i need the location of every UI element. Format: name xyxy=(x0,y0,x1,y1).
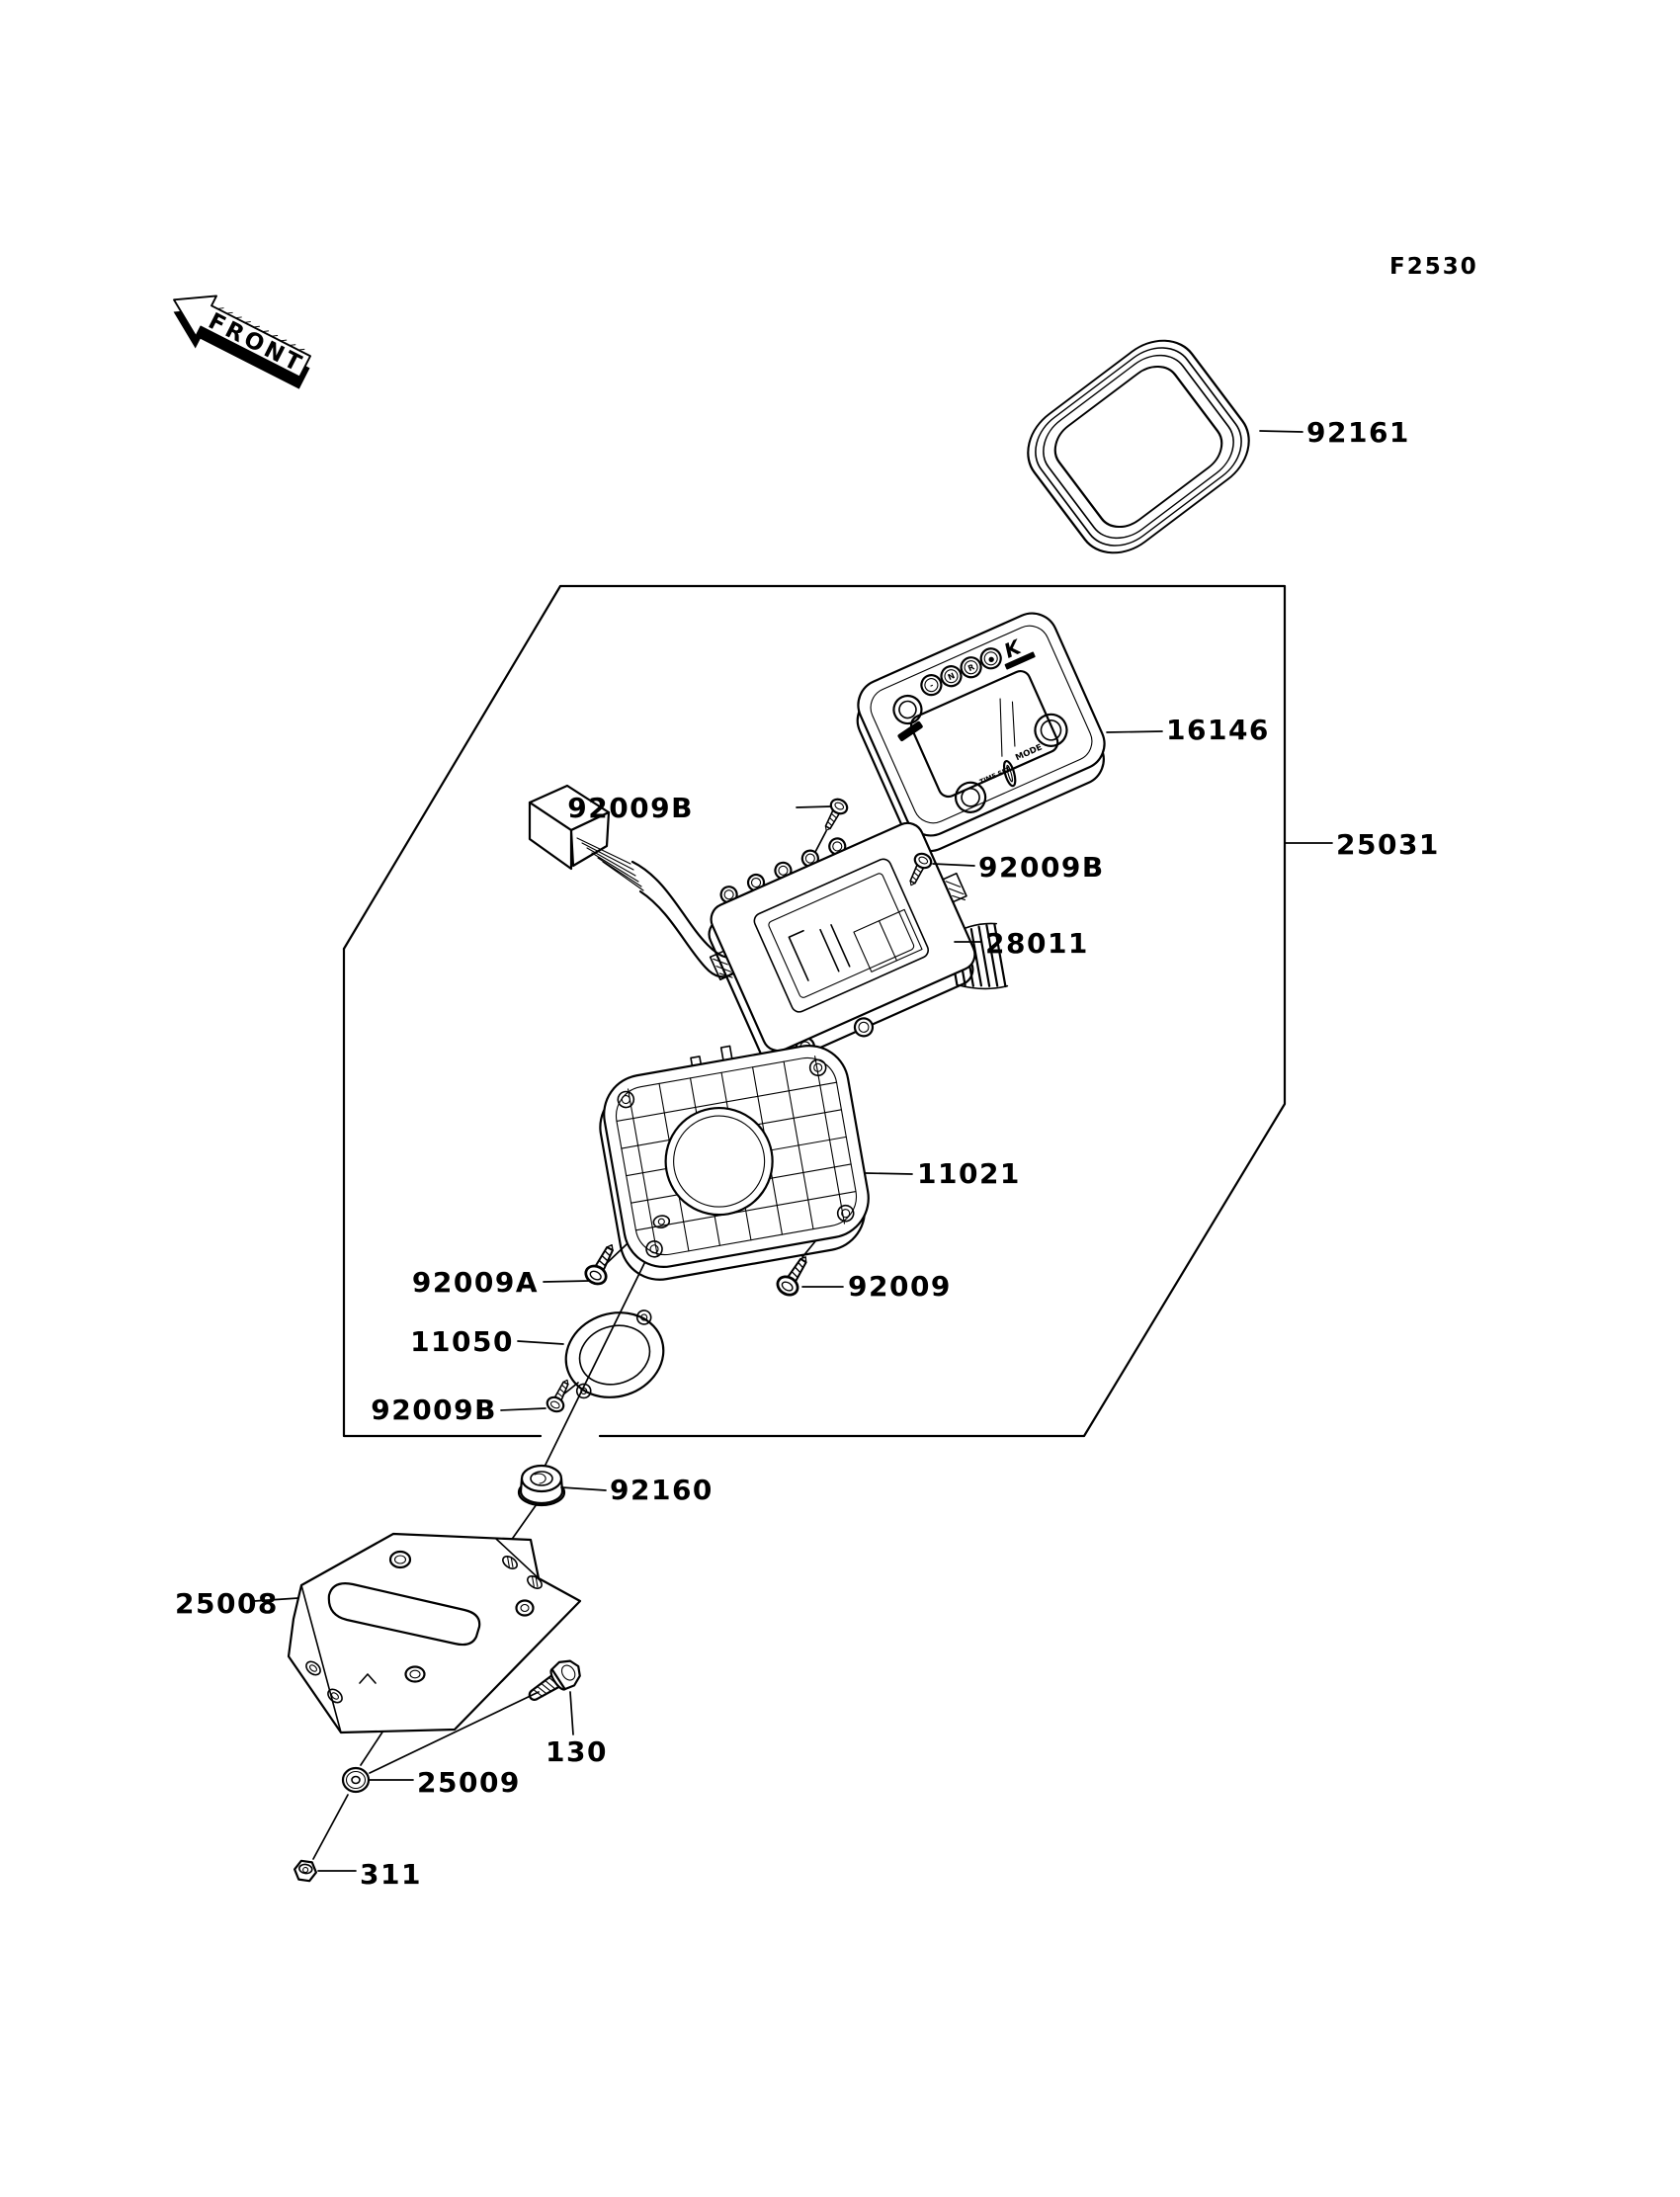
diagram-page: FRONT - N R ● K xyxy=(0,0,1680,2197)
washer-25009 xyxy=(343,1768,369,1792)
callout-25009: 25009 xyxy=(417,1766,521,1799)
callout-92009b-right: 92009B xyxy=(978,851,1105,884)
callout-92009: 92009 xyxy=(848,1270,952,1303)
callout-92009b-lower: 92009B xyxy=(371,1394,497,1426)
callout-130: 130 xyxy=(546,1735,608,1768)
parts-diagram: FRONT - N R ● K xyxy=(0,0,1680,2197)
callout-25031: 25031 xyxy=(1336,828,1440,861)
callout-25008: 25008 xyxy=(175,1587,279,1620)
callout-92161: 92161 xyxy=(1306,416,1410,449)
callout-16146: 16146 xyxy=(1166,714,1270,746)
callout-311: 311 xyxy=(360,1858,422,1891)
callout-11050: 11050 xyxy=(410,1325,514,1358)
callout-11021: 11021 xyxy=(917,1157,1021,1190)
callout-92009a: 92009A xyxy=(412,1266,539,1299)
damper-92160 xyxy=(519,1466,564,1505)
figure-code: F2530 xyxy=(1389,254,1478,280)
callout-28011: 28011 xyxy=(985,927,1089,960)
callout-92160: 92160 xyxy=(610,1474,714,1506)
callout-92009b-top: 92009B xyxy=(567,792,694,824)
